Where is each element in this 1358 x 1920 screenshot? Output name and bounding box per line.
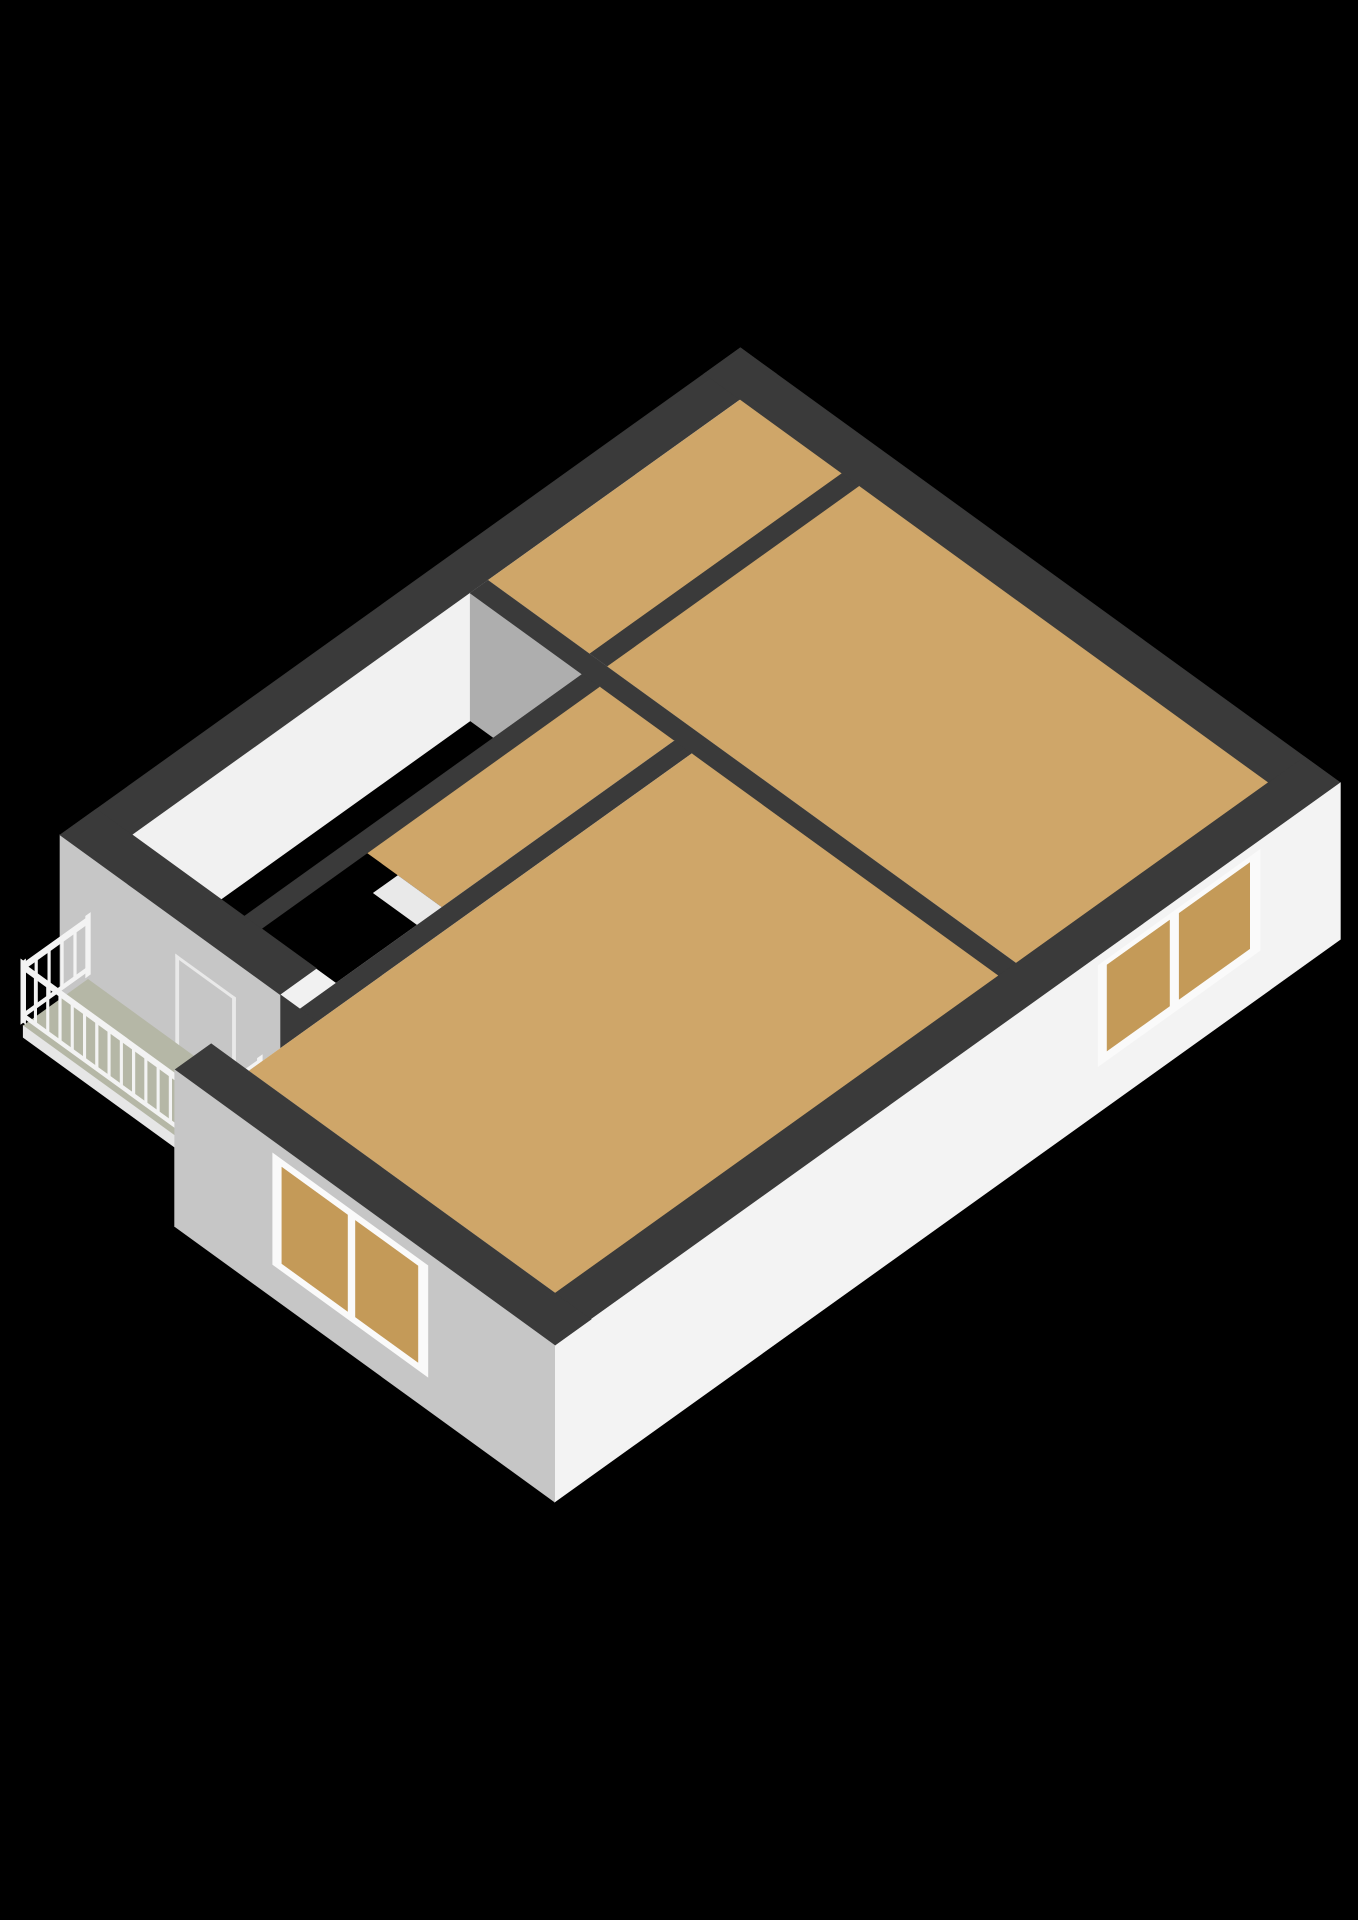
floorplan-viewport[interactable]	[0, 0, 1358, 1920]
floorplan-3d-render	[0, 0, 1358, 1920]
